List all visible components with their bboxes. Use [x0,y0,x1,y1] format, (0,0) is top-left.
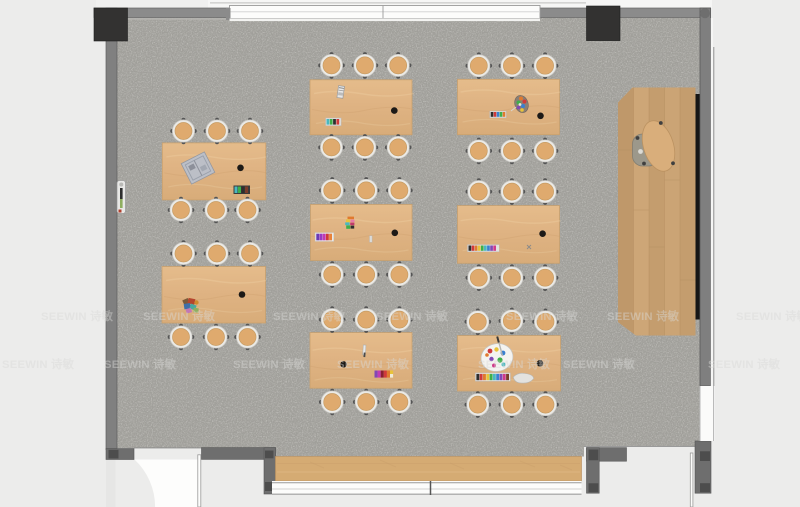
svg-text:SEEWIN 诗敏: SEEWIN 诗敏 [143,309,216,323]
svg-text:SEEWIN 诗敏: SEEWIN 诗敏 [478,357,551,371]
svg-text:SEEWIN 诗敏: SEEWIN 诗敏 [506,309,579,323]
svg-text:SEEWIN 诗敏: SEEWIN 诗敏 [2,357,75,371]
svg-text:SEEWIN 诗敏: SEEWIN 诗敏 [736,309,800,323]
svg-text:SEEWIN 诗敏: SEEWIN 诗敏 [607,309,680,323]
svg-text:SEEWIN 诗敏: SEEWIN 诗敏 [376,309,449,323]
svg-text:SEEWIN 诗敏: SEEWIN 诗敏 [104,357,177,371]
svg-text:SEEWIN 诗敏: SEEWIN 诗敏 [273,309,346,323]
svg-text:SEEWIN 诗敏: SEEWIN 诗敏 [41,309,114,323]
svg-text:SEEWIN 诗敏: SEEWIN 诗敏 [337,357,410,371]
svg-text:SEEWIN 诗敏: SEEWIN 诗敏 [563,357,636,371]
svg-text:SEEWIN 诗敏: SEEWIN 诗敏 [708,357,781,371]
svg-text:SEEWIN 诗敏: SEEWIN 诗敏 [233,357,306,371]
